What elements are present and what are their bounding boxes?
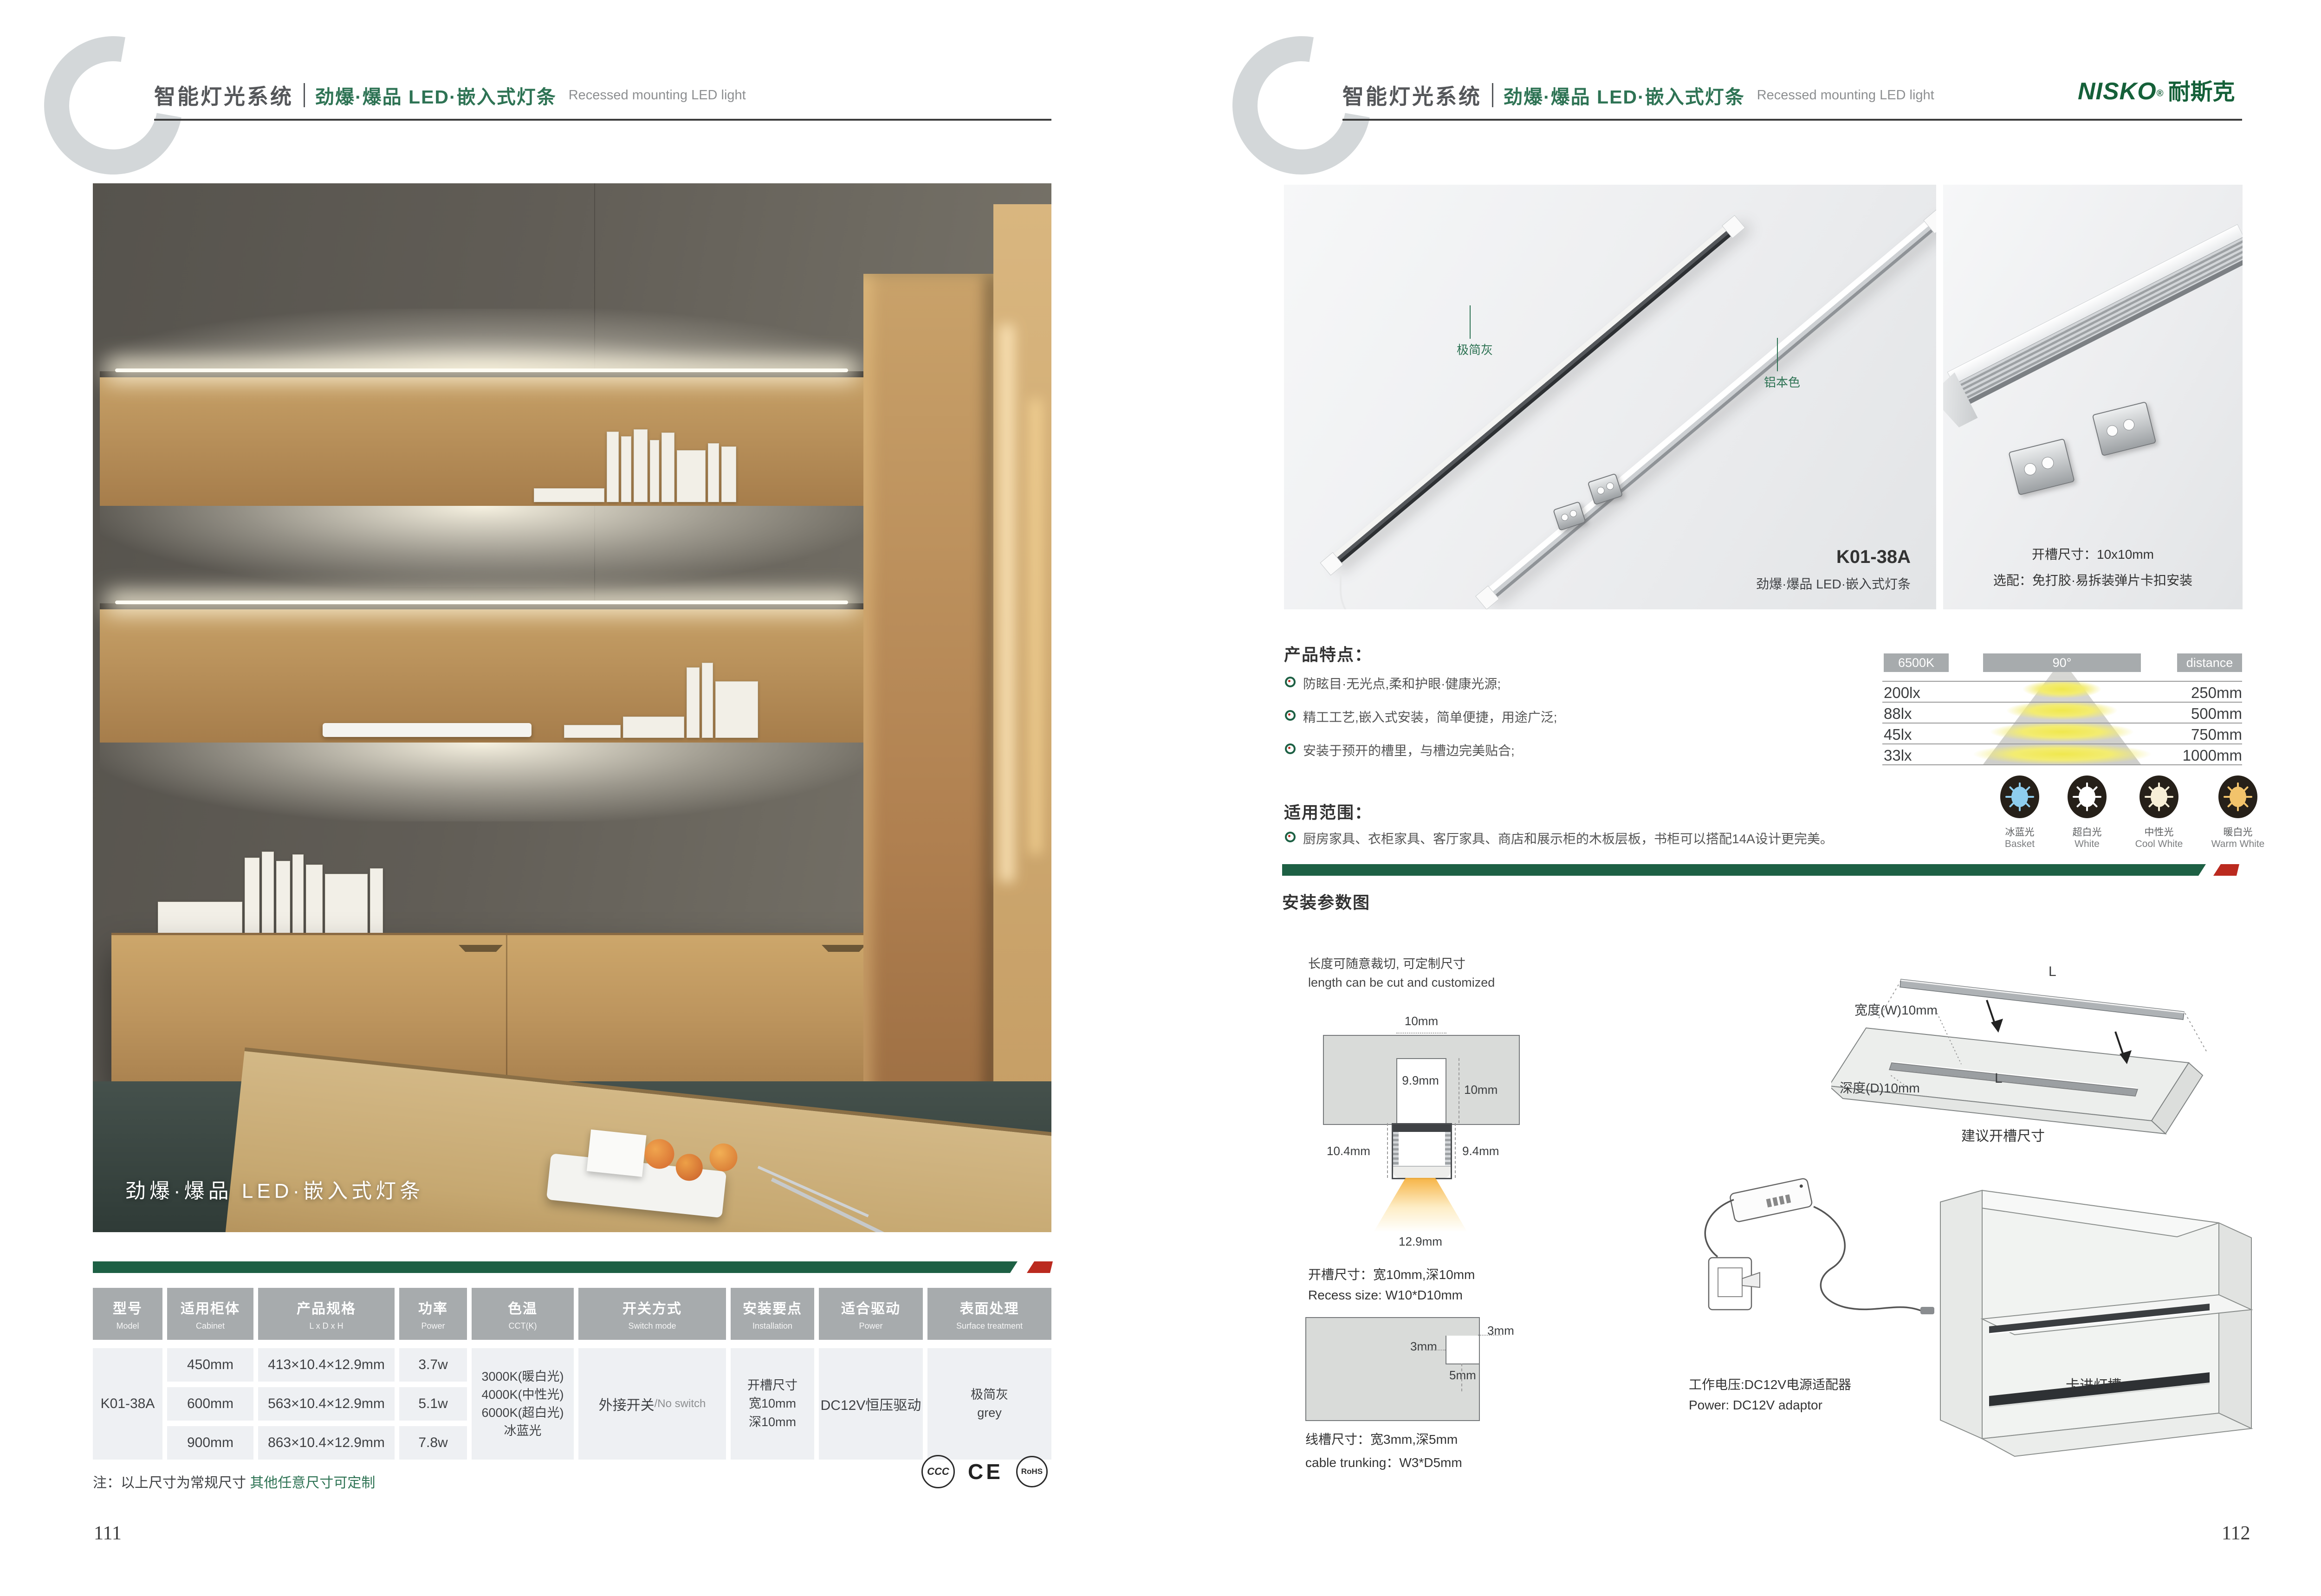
dim-guide <box>1459 1058 1459 1123</box>
scope-text: 厨房家具、衣柜家具、客厅家具、商店和展示柜的木板层板，书柜可以搭配14A设计更完… <box>1303 829 1833 847</box>
strip-endcap <box>1320 552 1344 576</box>
beam-pool-3 <box>1990 722 2134 742</box>
upper-shelf-led <box>115 368 848 372</box>
col-en: CCT(K) <box>509 1321 537 1331</box>
strip-endcap <box>1923 210 1936 234</box>
col-cn: 表面处理 <box>960 1297 1019 1318</box>
header-rule <box>154 119 1051 121</box>
recess-size-cn: 开槽尺寸：宽10mm,深10mm <box>1308 1265 1475 1283</box>
power-cord <box>1340 575 1416 609</box>
lux-value: 200lx <box>1884 684 1920 702</box>
book <box>306 865 323 935</box>
profile-closeup <box>1947 225 2243 407</box>
trunk-size-cn: 线槽尺寸：宽3mm,深5mm <box>1305 1429 1458 1448</box>
header-rule <box>1342 119 2242 121</box>
col-cn: 安装要点 <box>743 1297 802 1318</box>
col-header-install: 安装要点Installation <box>731 1288 814 1340</box>
right-page-number: 112 <box>2222 1522 2250 1544</box>
book <box>687 667 700 738</box>
col-header-model: 型号Model <box>93 1288 162 1340</box>
feature-item: 精工工艺,嵌入式安装，简单便捷，用途广泛; <box>1285 707 1819 726</box>
color-temp-cn: 暖白光 <box>2210 825 2266 839</box>
book <box>534 488 604 502</box>
power-note-en: Power: DC12V adaptor <box>1689 1398 1822 1413</box>
col-cn: 产品规格 <box>297 1297 356 1318</box>
model-code: K01-38A <box>1756 547 1911 568</box>
feature-item: 安装于预开的槽里，与槽边完美贴合; <box>1285 741 1819 759</box>
col-cn: 适用柜体 <box>181 1297 240 1318</box>
distance-value: 1000mm <box>2163 747 2242 764</box>
power-cell: 7.8w <box>399 1426 467 1460</box>
col-cn: 开关方式 <box>622 1297 682 1318</box>
dim-guide <box>1387 1123 1388 1178</box>
col-en: Installation <box>752 1321 792 1331</box>
certifications: CCC CE RoHS <box>921 1455 1048 1488</box>
cabinet-cell: 900mm <box>167 1426 253 1460</box>
cool-white-sun-icon <box>2139 775 2178 818</box>
photo-model-block: K01-38A 劲爆·爆品 LED·嵌入式灯条 <box>1756 547 1911 593</box>
dim-groove-width: 10mm <box>1394 1014 1449 1028</box>
cabinet-column: 450mm 600mm 900mm <box>167 1348 253 1460</box>
col-en: L x D x H <box>309 1321 343 1331</box>
clip-hole <box>2041 456 2055 471</box>
chart-gridline <box>1882 723 2242 724</box>
book <box>292 854 304 935</box>
cut-note-cn: 长度可随意裁切, 可定制尺寸 <box>1308 954 1465 972</box>
book <box>634 429 648 502</box>
surface-column: 极简灰 grey <box>927 1348 1051 1460</box>
drawer-handle-left <box>459 945 503 952</box>
left-header: 智能灯光系统 劲爆·爆品 LED·嵌入式灯条 Recessed mounting… <box>154 80 746 110</box>
mounting-clip-large <box>2092 401 2157 456</box>
dim-guide <box>1455 1123 1456 1178</box>
install-line: 开槽尺寸 <box>747 1376 797 1395</box>
lux-value: 45lx <box>1884 726 1912 743</box>
category-title-en: Recessed mounting LED light <box>1757 88 1934 103</box>
cabinet-diagram: 卡进灯槽 <box>1913 1142 2265 1467</box>
system-title: 智能灯光系统 <box>154 80 293 110</box>
color-temp-white: 超白光 White <box>2066 775 2108 850</box>
led-strip-grey <box>1324 219 1741 571</box>
trunking-diagram: 3mm 3mm 5mm <box>1305 1317 1519 1428</box>
col-en: Cabinet <box>196 1321 225 1331</box>
groove-board-drawing <box>1831 954 2272 1153</box>
distance-value: 500mm <box>2163 705 2242 723</box>
chart-header-angle: 90° <box>1983 653 2141 672</box>
table-note: 注：以上尺寸为常规尺寸 其他任意尺寸可定制 <box>93 1471 375 1492</box>
book <box>677 450 706 502</box>
color-temp-warm-white: 暖白光 Warm White <box>2210 775 2266 850</box>
dim-groove-inner: 9.9mm <box>1393 1073 1448 1088</box>
profile-fin-left <box>1393 1132 1399 1165</box>
middle-shelf <box>100 603 863 743</box>
board-depth-label: 深度(D)10mm <box>1840 1078 1920 1097</box>
profile-section <box>1392 1123 1452 1179</box>
logo-registered: ® <box>2157 89 2164 99</box>
bullet-icon <box>1285 677 1296 687</box>
beam-pool-2 <box>2006 701 2118 720</box>
trunk-dim-side: 3mm <box>1410 1339 1437 1354</box>
catalog-spread: 智能灯光系统 劲爆·爆品 LED·嵌入式灯条 Recessed mounting… <box>0 0 2321 1596</box>
profile-fins <box>1953 237 2243 404</box>
distance-value: 250mm <box>2163 684 2242 702</box>
col-cn: 色温 <box>508 1297 538 1318</box>
col-header-driver: 适合驱动Power <box>819 1288 923 1340</box>
scope-item: 厨房家具、衣柜家具、客厅家具、商店和展示柜的木板层板，书柜可以搭配14A设计更完… <box>1285 829 1879 847</box>
mounting-clip-large <box>2008 438 2075 495</box>
label-leader <box>1470 305 1471 339</box>
clip-hole <box>1596 486 1605 495</box>
system-title: 智能灯光系统 <box>1342 80 1482 110</box>
cross-section-diagram: 10mm 9.9mm 10mm 10.4mm 9.4mm 12.9mm <box>1323 1014 1523 1248</box>
photo-caption: 劲爆·爆品 LED·嵌入式灯条 <box>125 1174 424 1204</box>
chart-gridline <box>1882 681 2242 682</box>
book <box>607 432 619 502</box>
col-en: Model <box>116 1321 139 1331</box>
cct-cell: 3000K(暖白光) 4000K(中性光) 6000K(超白光) 冰蓝光 <box>472 1348 574 1460</box>
col-header-cct: 色温CCT(K) <box>472 1288 574 1340</box>
product-photo-main: 极简灰 铝本色 K01-38A 劲爆·爆品 LED·嵌入式灯条 <box>1284 185 1936 609</box>
spec-table-body: K01-38A 450mm 600mm 900mm 413×10.4×12.9m… <box>93 1348 1051 1460</box>
clip-into-groove-label: 卡进灯槽 <box>2066 1374 2121 1394</box>
product-photo-detail: 开槽尺寸：10x10mm 选配：免打胶·易拆装弹片卡扣安装 <box>1943 185 2243 609</box>
category-title: 劲爆·爆品 LED·嵌入式灯条 <box>1504 81 1745 109</box>
book <box>276 861 290 935</box>
right-header: 智能灯光系统 劲爆·爆品 LED·嵌入式灯条 Recessed mounting… <box>1342 80 1934 110</box>
beam-pool-1 <box>2023 680 2101 698</box>
size-cell: 563×10.4×12.9mm <box>258 1387 395 1421</box>
col-en: Surface treatment <box>956 1321 1023 1331</box>
cct-line: 冰蓝光 <box>504 1422 542 1440</box>
middle-shelf-books <box>564 645 758 738</box>
trunk-dim-depth: 5mm <box>1449 1368 1476 1383</box>
groove-length-label: L <box>1995 1071 2003 1086</box>
right-page: 智能灯光系统 劲爆·爆品 LED·嵌入式灯条 Recessed mounting… <box>1168 0 2321 1596</box>
tall-cabinet <box>863 274 993 1207</box>
color-temp-cn: 超白光 <box>2066 825 2108 839</box>
switch-cell: 外接开关 /No switch <box>578 1348 726 1460</box>
bullet-icon <box>1285 743 1296 754</box>
book <box>621 436 631 502</box>
ce-icon: CE <box>968 1459 1003 1484</box>
upper-shelf-glow <box>100 506 863 587</box>
left-separator-bar <box>93 1261 1018 1273</box>
book <box>325 874 368 935</box>
size-cell: 863×10.4×12.9mm <box>258 1426 395 1460</box>
peach-3 <box>708 1142 739 1173</box>
category-title: 劲爆·爆品 LED·嵌入式灯条 <box>315 81 557 109</box>
left-page-number: 111 <box>94 1522 122 1544</box>
white-tray <box>323 723 532 737</box>
dim-guide <box>1425 1350 1446 1350</box>
detail-text-block: 开槽尺寸：10x10mm 选配：免打胶·易拆装弹片卡扣安装 <box>1943 544 2243 589</box>
col-header-cabinet: 适用柜体Cabinet <box>167 1288 253 1340</box>
spec-table-header: 型号Model 适用柜体Cabinet 产品规格L x D x H 功率Powe… <box>93 1288 1051 1340</box>
col-header-surface: 表面处理Surface treatment <box>927 1288 1051 1340</box>
board-length-label: L <box>2049 964 2056 980</box>
profile-fin-right <box>1445 1132 1451 1165</box>
label-leader <box>1777 338 1778 371</box>
lux-value: 88lx <box>1884 705 1912 723</box>
middle-shelf-glow <box>100 743 863 821</box>
brand-logo: NISKO®耐斯克 <box>2078 73 2235 106</box>
book <box>661 433 674 502</box>
col-header-size: 产品规格L x D x H <box>258 1288 395 1340</box>
trunk-notch <box>1446 1336 1479 1364</box>
surface-cell: 极简灰 grey <box>927 1348 1051 1460</box>
dim-beam-width: 12.9mm <box>1386 1234 1455 1249</box>
ice-blue-sun-icon <box>2000 775 2039 818</box>
book <box>715 681 758 738</box>
napkin <box>587 1130 647 1177</box>
logo-latin: NISKO <box>2078 78 2157 105</box>
chart-gridline <box>1882 702 2242 703</box>
driver-column: DC12V恒压驱动 <box>819 1348 923 1460</box>
header-divider <box>304 83 305 107</box>
header-divider <box>1492 83 1493 107</box>
model-cell: K01-38A <box>93 1348 162 1460</box>
color-temp-en: Basket <box>1999 839 2041 850</box>
install-column: 开槽尺寸 宽10mm 深10mm <box>731 1348 814 1460</box>
clip-hole <box>2122 418 2136 432</box>
option-line: 选配：免打胶·易拆装弹片卡扣安装 <box>1943 570 2243 589</box>
knife <box>771 1178 889 1232</box>
ccc-icon: CCC <box>921 1455 955 1488</box>
col-en: Power <box>859 1321 882 1331</box>
beam-pool-4 <box>1973 743 2152 765</box>
fork <box>758 1166 869 1217</box>
color-temp-cn: 中性光 <box>2133 825 2185 839</box>
bullet-icon <box>1285 710 1296 721</box>
distance-value: 750mm <box>2163 726 2242 743</box>
feature-text: 防眩目·无光点,柔和护眼·健康光源; <box>1303 674 1501 692</box>
profile-pcb <box>1393 1124 1451 1132</box>
note-black: 注：以上尺寸为常规尺寸 <box>93 1475 250 1491</box>
book <box>702 663 713 738</box>
upper-shelf <box>100 371 863 506</box>
chart-gridline <box>1882 743 2242 744</box>
profile-diffuser-section <box>1393 1166 1451 1178</box>
dim-guide <box>1461 1363 1462 1391</box>
note-green: 其他任意尺寸可定制 <box>250 1475 375 1491</box>
book <box>623 717 684 738</box>
clip-hole <box>1560 513 1569 522</box>
surface-line: 极简灰 <box>971 1386 1008 1404</box>
col-header-power: 功率Power <box>399 1288 467 1340</box>
panel-warm-light-2 <box>1031 399 1041 854</box>
recess-size-en: Recess size: W10*D10mm <box>1308 1288 1463 1303</box>
left-separator-red <box>1027 1261 1053 1273</box>
lux-value: 33lx <box>1884 747 1912 764</box>
cct-column: 3000K(暖白光) 4000K(中性光) 6000K(超白光) 冰蓝光 <box>472 1348 574 1460</box>
light-distribution-chart: 6500K 90° distance 200lx 88lx 45lx 33lx … <box>1882 650 2242 770</box>
feature-item: 防眩目·无光点,柔和护眼·健康光源; <box>1285 674 1819 692</box>
chart-header-cct: 6500K <box>1884 653 1949 672</box>
clip-hole <box>2106 424 2119 438</box>
trunk-dim-top: 3mm <box>1487 1324 1514 1338</box>
middle-shelf-led <box>115 601 848 604</box>
recess-size-line: 开槽尺寸：10x10mm <box>1943 544 2243 563</box>
sideboard-books <box>158 847 520 935</box>
cabinet-cell: 450mm <box>167 1348 253 1382</box>
cct-line: 4000K(中性光) <box>481 1386 564 1404</box>
size-column: 413×10.4×12.9mm 563×10.4×12.9mm 863×10.4… <box>258 1348 395 1460</box>
cabinet-cell: 600mm <box>167 1387 253 1421</box>
white-sun-icon <box>2068 775 2107 818</box>
book <box>370 868 383 935</box>
col-cn: 型号 <box>113 1297 143 1318</box>
switch-en: /No switch <box>655 1397 706 1410</box>
book <box>650 440 659 502</box>
book <box>245 858 259 935</box>
dim-guide <box>1396 1033 1446 1034</box>
panel-warm-light <box>1000 325 1014 882</box>
clip-hole <box>1605 481 1614 491</box>
dim-guide <box>1478 1335 1501 1336</box>
feature-text: 安装于预开的槽里，与槽边完美贴合; <box>1303 741 1515 759</box>
book-stack <box>158 902 242 935</box>
driver-cell: DC12V恒压驱动 <box>819 1348 923 1460</box>
switch-cn: 外接开关 <box>599 1394 655 1414</box>
cut-note-en: length can be cut and customized <box>1308 976 1495 990</box>
clip-hole <box>2023 462 2038 477</box>
color-temp-ice-blue: 冰蓝光 Basket <box>1999 775 2041 850</box>
book <box>262 852 274 935</box>
drawer-handle-right <box>822 945 866 952</box>
cct-line: 3000K(暖白光) <box>481 1368 564 1386</box>
color-temp-en: White <box>2066 839 2108 850</box>
clip-hole <box>1569 509 1578 518</box>
category-title-en: Recessed mounting LED light <box>569 88 746 103</box>
book <box>721 446 736 502</box>
install-title: 安装参数图 <box>1282 889 1370 913</box>
dim-profile-left: 10.4mm <box>1327 1144 1370 1158</box>
color-temp-icons: 冰蓝光 Basket 超白光 White <box>1999 775 2266 850</box>
color-temp-cn: 冰蓝光 <box>1999 825 2041 839</box>
upper-shelf-books <box>534 423 808 502</box>
scope-title: 适用范围： <box>1284 799 1372 823</box>
chart-gridline <box>1882 764 2242 765</box>
groove-cut <box>1396 1058 1446 1125</box>
profile-diffuser <box>1947 224 2243 385</box>
trunk-size-en: cable trunking：W3*D5mm <box>1305 1453 1462 1471</box>
groove-board-diagram: L 宽度(W)10mm L 深度(D)10mm 建议开槽尺寸 <box>1831 954 2272 1153</box>
switch-column: 外接开关 /No switch <box>578 1348 726 1460</box>
finish-label-aluminum: 铝本色 <box>1764 373 1800 390</box>
dim-groove-depth: 10mm <box>1464 1083 1498 1097</box>
col-cn: 功率 <box>418 1297 448 1318</box>
power-note-cn: 工作电压:DC12V电源适配器 <box>1689 1375 1851 1393</box>
cct-line: 6000K(超白光) <box>481 1404 564 1422</box>
feature-text: 精工工艺,嵌入式安装，简单便捷，用途广泛; <box>1303 707 1557 726</box>
light-beam <box>1374 1178 1467 1231</box>
power-cell: 3.7w <box>399 1348 467 1382</box>
right-separator-bar <box>1282 864 2206 876</box>
install-line: 宽10mm <box>749 1395 796 1413</box>
size-cell: 413×10.4×12.9mm <box>258 1348 395 1382</box>
cabinet-drawing <box>1913 1142 2265 1467</box>
strip-endcap <box>1722 215 1745 239</box>
right-separator-red <box>2213 864 2239 876</box>
install-cell: 开槽尺寸 宽10mm 深10mm <box>731 1348 814 1460</box>
color-temp-en: Warm White <box>2210 839 2266 850</box>
col-en: Power <box>421 1321 445 1331</box>
col-header-switch: 开关方式Switch mode <box>578 1288 726 1340</box>
col-cn: 适合驱动 <box>841 1297 901 1318</box>
warm-white-sun-icon <box>2218 775 2257 818</box>
color-temp-cool-white: 中性光 Cool White <box>2133 775 2185 850</box>
sideboard <box>111 933 901 1081</box>
book <box>708 443 719 502</box>
upper-shelf-top-glow <box>100 309 863 374</box>
color-temp-en: Cool White <box>2133 839 2185 850</box>
board-width-label: 宽度(W)10mm <box>1854 1000 1938 1019</box>
model-caption: 劲爆·爆品 LED·嵌入式灯条 <box>1756 574 1911 593</box>
rohs-icon: RoHS <box>1016 1456 1048 1487</box>
bullet-icon <box>1285 832 1296 842</box>
features-title: 产品特点： <box>1284 641 1372 666</box>
dim-profile-right: 9.4mm <box>1462 1144 1499 1158</box>
chart-header-distance: distance <box>2177 653 2242 672</box>
power-cell: 5.1w <box>399 1387 467 1421</box>
book <box>564 725 621 738</box>
power-column: 3.7w 5.1w 7.8w <box>399 1348 467 1460</box>
model-column: K01-38A <box>93 1348 162 1460</box>
finish-label-grey: 极简灰 <box>1457 341 1493 358</box>
lifestyle-photo: 劲爆·爆品 LED·嵌入式灯条 <box>93 183 1051 1232</box>
col-en: Switch mode <box>628 1321 676 1331</box>
left-page: 智能灯光系统 劲爆·爆品 LED·嵌入式灯条 Recessed mounting… <box>0 0 1168 1596</box>
install-line: 深10mm <box>749 1413 796 1431</box>
display-panel <box>993 204 1051 1207</box>
strip-endcap <box>1475 585 1499 609</box>
sideboard-divider <box>506 935 507 1081</box>
surface-line: grey <box>977 1404 1002 1422</box>
logo-chinese: 耐斯克 <box>2168 80 2235 104</box>
